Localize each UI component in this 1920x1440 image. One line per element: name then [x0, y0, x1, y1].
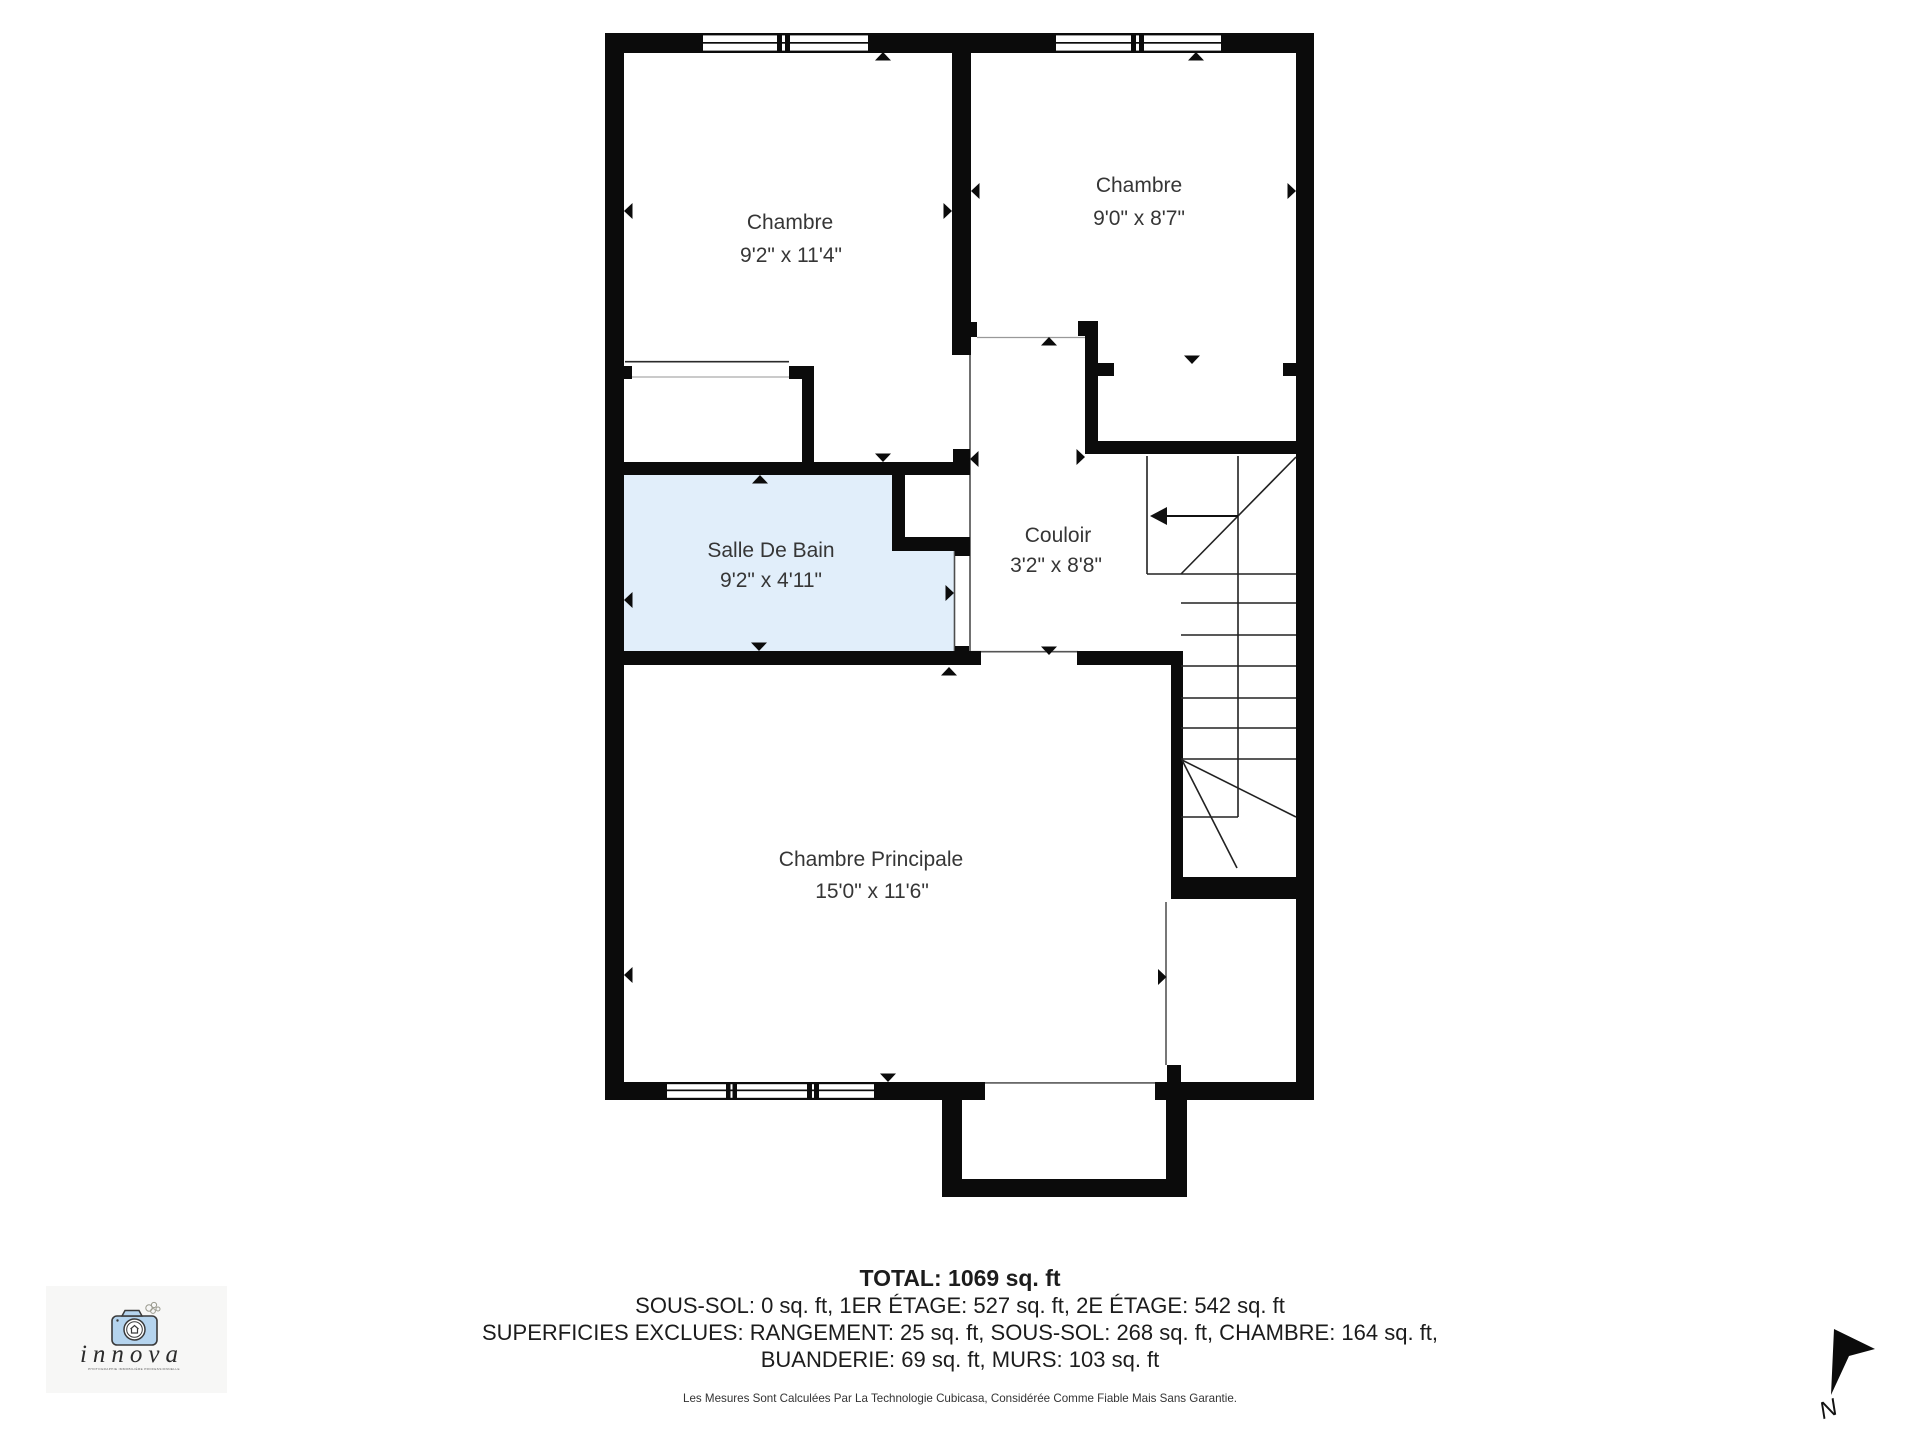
svg-text:PHOTOGRAPHIE IMMOBILIÈRE PROFE: PHOTOGRAPHIE IMMOBILIÈRE PROFESSIONNELLE	[88, 1366, 180, 1371]
svg-text:N: N	[1816, 1393, 1842, 1425]
svg-text:innova: innova	[80, 1341, 184, 1368]
